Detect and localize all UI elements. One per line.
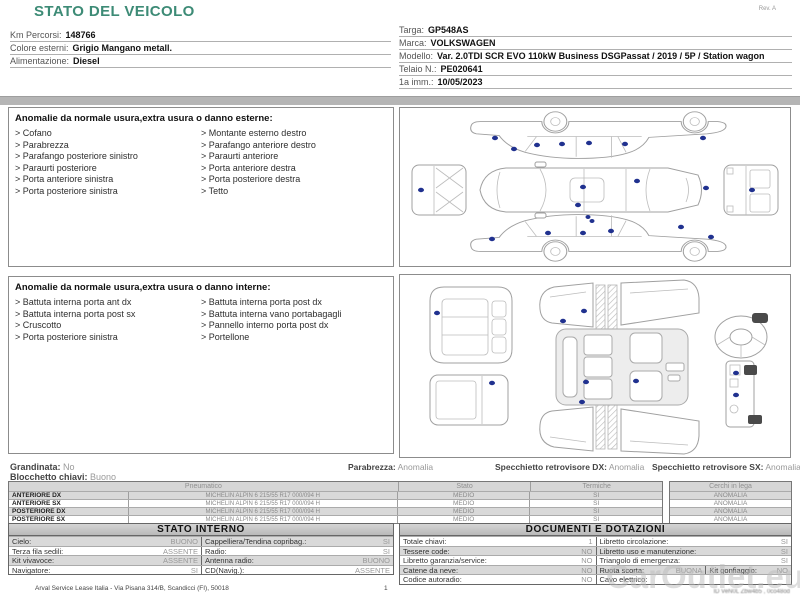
documenti-title: DOCUMENTI E DOTAZIONI: [400, 524, 791, 536]
table-row: Codice autoradio:NO Cavo elettrico:: [400, 574, 791, 584]
anomaly-item: Portellone: [201, 332, 381, 344]
cell-value: SI: [383, 547, 390, 556]
page-number: 1: [384, 585, 388, 592]
tyre-position: POSTERIORE SX: [9, 516, 129, 523]
tyre-termiche: SI: [530, 492, 662, 499]
info-value: PE020641: [441, 64, 483, 74]
info-label: Colore esterni:: [10, 43, 69, 53]
cell-value: SI: [191, 566, 198, 575]
tyre-row: ANTERIORE DX MICHELIN ALPIN 6 215/55 R17…: [9, 491, 662, 499]
cell-label: Terza fila sedili:: [12, 547, 63, 556]
table-cell: CD(Navig.):ASSENTE: [201, 566, 393, 575]
footer-address: Arval Service Lease Italia - Via Pisana …: [35, 585, 229, 592]
grandinata-status: Grandinata: No: [10, 462, 75, 472]
cerchi-header: Cerchi in lega: [670, 482, 791, 491]
cell-label: Navigatore:: [12, 566, 50, 575]
info-label: Telaio N.:: [399, 64, 437, 74]
info-row-alimentazione: Alimentazione:Diesel: [10, 55, 391, 68]
vehicle-info-left: Km Percorsi:148766 Colore esterni:Grigio…: [10, 29, 391, 68]
cell-label: CD(Navig.):: [205, 566, 244, 575]
anomaly-item: Battuta interna porta ant dx: [15, 297, 195, 309]
table-cell: Catene da neve:NO: [400, 566, 596, 575]
anomaly-item: Porta anteriore sinistra: [15, 174, 195, 186]
tyre-description: MICHELIN ALPIN 6 215/55 R17 000/094 H: [129, 492, 398, 499]
table-cell: Tessere code:NO: [400, 547, 596, 556]
col-header-cerchi: Cerchi in lega: [670, 482, 791, 491]
tailgate-view: [430, 375, 508, 425]
cell-value: NO: [777, 566, 788, 575]
cerchi-table: Cerchi in lega ANOMALIA ANOMALIA ANOMALI…: [669, 481, 792, 524]
info-value: GP548AS: [428, 25, 469, 35]
anomaly-item: Cruscotto: [15, 320, 195, 332]
anomaly-item: Porta anteriore destra: [201, 163, 381, 175]
status-label: Specchietto retrovisore SX:: [652, 462, 763, 472]
tyre-position: ANTERIORE DX: [9, 492, 129, 499]
anomaly-item: Porta posteriore sinistra: [15, 332, 195, 344]
status-value: Anomalia: [398, 462, 433, 472]
anomaly-item: Battuta interna vano portabagagli: [201, 309, 381, 321]
table-cell: Cavo elettrico:: [596, 575, 792, 584]
table-row: Totale chiavi:1 Libretto circolazione:SI: [400, 536, 791, 546]
cell-label: Libretto uso e manutenzione:: [600, 547, 697, 556]
anomaly-item: Montante esterno destro: [201, 128, 381, 140]
anomaly-column-left: Battuta interna porta ant dx Battuta int…: [15, 297, 201, 343]
cell-value: ASSENTE: [163, 547, 198, 556]
table-cell: Cielo:BUONO: [9, 537, 201, 546]
cell-value: ASSENTE: [355, 566, 390, 575]
anomaly-column-right: Montante esterno destro Parafango anteri…: [201, 128, 387, 197]
info-value: Var. 2.0TDI SCR EVO 110kW Business DSGPa…: [437, 51, 764, 61]
cell-label: Ruota scorta:: [600, 566, 645, 575]
info-row-marca: Marca:VOLKSWAGEN: [399, 37, 792, 50]
tyre-stato: MEDIO: [398, 508, 531, 515]
table-row: Tessere code:NO Libretto uso e manutenzi…: [400, 546, 791, 556]
status-label: Grandinata:: [10, 462, 61, 472]
col-header-termiche: Termiche: [531, 482, 662, 491]
info-label: Targa:: [399, 25, 424, 35]
separator-bar: [0, 96, 800, 105]
table-cell: Codice autoradio:NO: [400, 575, 596, 584]
trunk-view: [430, 287, 512, 363]
cell-label: Libretto garanzia/service:: [403, 556, 487, 565]
tyre-position: ANTERIORE SX: [9, 500, 129, 507]
internal-anomalies-title: Anomalie da normale usura,extra usura o …: [9, 277, 393, 296]
tyre-termiche: SI: [530, 516, 662, 523]
damage-markers-exterior: [418, 136, 755, 241]
anomaly-column-right: Battuta interna porta post dx Battuta in…: [201, 297, 387, 343]
table-cell: Antenna radio:BUONO: [201, 556, 393, 565]
info-label: Km Percorsi:: [10, 30, 62, 40]
car-side-view-bottom: [471, 215, 726, 262]
table-row: Catene da neve:NO Ruota scorta:BUONA Kit…: [400, 565, 791, 575]
table-subcell: Kit gonfiaggio:NO: [705, 566, 791, 575]
cell-value: NO: [581, 566, 592, 575]
tyre-stato: MEDIO: [398, 500, 531, 507]
info-row-km: Km Percorsi:148766: [10, 29, 391, 42]
table-cell: Kit vivavoce:ASSENTE: [9, 556, 201, 565]
document-code: ID VeN0L Zbw4b5 , 0co48od: [714, 589, 791, 595]
table-cell: Triangolo di emergenza:SI: [596, 556, 792, 565]
tyre-stato: MEDIO: [398, 492, 531, 499]
cerchi-value: ANOMALIA: [670, 507, 791, 515]
anomaly-item: Paraurti anteriore: [201, 151, 381, 163]
cabin-view: [540, 280, 699, 454]
external-anomalies-title: Anomalie da normale usura,extra usura o …: [9, 108, 393, 127]
interior-diagram-panel: [399, 274, 791, 458]
internal-anomalies-list: Battuta interna porta ant dx Battuta int…: [9, 296, 393, 344]
table-cell: Terza fila sedili:ASSENTE: [9, 547, 201, 556]
table-cell: Cappelliera/Tendina copribag.:SI: [201, 537, 393, 546]
table-subcell: Ruota scorta:BUONA: [597, 566, 706, 575]
exterior-diagram-panel: [399, 107, 791, 267]
cell-label: Cavo elettrico:: [600, 575, 648, 584]
info-label: 1a imm.:: [399, 77, 434, 87]
cell-value: BUONA: [676, 566, 703, 575]
cell-label: Cappelliera/Tendina copribag.:: [205, 537, 306, 546]
tyre-row: POSTERIORE SX MICHELIN ALPIN 6 215/55 R1…: [9, 515, 662, 523]
vehicle-info-right: Targa:GP548AS Marca:VOLKSWAGEN Modello:V…: [399, 24, 792, 89]
tyres-table-header: Pneumatico Stato Termiche: [9, 482, 662, 491]
cell-value: BUONO: [170, 537, 198, 546]
anomaly-item: Porta posteriore sinistra: [15, 186, 195, 198]
cerchi-value: ANOMALIA: [670, 499, 791, 507]
cell-value: BUONO: [362, 556, 390, 565]
parabrezza-status: Parabrezza: Anomalia: [348, 462, 433, 472]
table-row: Navigatore:SI CD(Navig.):ASSENTE: [9, 565, 393, 575]
info-label: Marca:: [399, 38, 427, 48]
anomaly-item: Parafango posteriore sinistro: [15, 151, 195, 163]
anomaly-item: Porta posteriore destra: [201, 174, 381, 186]
page-title: STATO DEL VEICOLO: [34, 3, 195, 20]
info-value: VOLKSWAGEN: [431, 38, 496, 48]
info-row-immatricolazione: 1a imm.:10/05/2023: [399, 76, 792, 89]
table-cell: Navigatore:SI: [9, 566, 201, 575]
info-value: 148766: [66, 30, 96, 40]
info-label: Alimentazione:: [10, 56, 69, 66]
cell-value: NO: [581, 556, 592, 565]
cerchi-value: ANOMALIA: [670, 491, 791, 499]
revision-label: Rev. A: [759, 6, 776, 12]
status-value: Anomalia: [765, 462, 800, 472]
tyre-termiche: SI: [530, 508, 662, 515]
cell-label: Kit gonfiaggio:: [709, 566, 757, 575]
car-side-view-top: [471, 112, 726, 159]
cell-value: ASSENTE: [163, 556, 198, 565]
cell-label: Antenna radio:: [205, 556, 254, 565]
tyre-stato: MEDIO: [398, 516, 531, 523]
table-cell: Libretto uso e manutenzione:SI: [596, 547, 792, 556]
cerchi-value: ANOMALIA: [670, 515, 791, 523]
anomaly-item: Battuta interna porta post dx: [201, 297, 381, 309]
documenti-dotazioni-table: DOCUMENTI E DOTAZIONI Totale chiavi:1 Li…: [399, 523, 792, 585]
info-row-colore: Colore esterni:Grigio Mangano metall.: [10, 42, 391, 55]
status-label: Specchietto retrovisore DX:: [495, 462, 607, 472]
col-header-stato: Stato: [399, 482, 532, 491]
anomaly-item: Cofano: [15, 128, 195, 140]
status-value: Anomalia: [609, 462, 644, 472]
cell-value: SI: [781, 547, 788, 556]
cell-label: Tessere code:: [403, 547, 450, 556]
tyre-position: POSTERIORE DX: [9, 508, 129, 515]
internal-anomalies-panel: Anomalie da normale usura,extra usura o …: [8, 276, 394, 454]
cell-value: SI: [781, 537, 788, 546]
tyre-description: MICHELIN ALPIN 6 215/55 R17 000/094 H: [129, 508, 398, 515]
table-cell: Radio:SI: [201, 547, 393, 556]
info-value: 10/05/2023: [438, 77, 483, 87]
cell-label: Kit vivavoce:: [12, 556, 54, 565]
anomaly-item: Battuta interna porta post sx: [15, 309, 195, 321]
anomaly-item: Pannello interno porta post dx: [201, 320, 381, 332]
car-top-view: [480, 162, 702, 218]
cell-label: Totale chiavi:: [403, 537, 446, 546]
status-value: No: [63, 462, 75, 472]
table-cell: Libretto garanzia/service:NO: [400, 556, 596, 565]
table-cell-split: Ruota scorta:BUONA Kit gonfiaggio:NO: [596, 566, 792, 575]
info-label: Modello:: [399, 51, 433, 61]
dashboard-view: [715, 313, 768, 427]
specchietto-dx-status: Specchietto retrovisore DX: Anomalia: [495, 462, 644, 472]
interior-damage-diagram: [400, 275, 790, 457]
anomaly-column-left: Cofano Parabrezza Parafango posteriore s…: [15, 128, 201, 197]
info-row-targa: Targa:GP548AS: [399, 24, 792, 37]
cell-label: Libretto circolazione:: [600, 537, 669, 546]
exterior-damage-diagram: [400, 108, 790, 266]
tyre-row: ANTERIORE SX MICHELIN ALPIN 6 215/55 R17…: [9, 499, 662, 507]
info-value: Diesel: [73, 56, 100, 66]
stato-interno-table: STATO INTERNO Cielo:BUONO Cappelliera/Te…: [8, 523, 394, 575]
tyre-description: MICHELIN ALPIN 6 215/55 R17 000/094 H: [129, 500, 398, 507]
cell-label: Catene da neve:: [403, 566, 458, 575]
status-label: Parabrezza:: [348, 462, 396, 472]
table-row: Cielo:BUONO Cappelliera/Tendina copribag…: [9, 536, 393, 546]
cell-value: 1: [588, 537, 592, 546]
info-row-modello: Modello:Var. 2.0TDI SCR EVO 110kW Busine…: [399, 50, 792, 63]
cell-label: Codice autoradio:: [403, 575, 462, 584]
table-cell: Totale chiavi:1: [400, 537, 596, 546]
table-cell: Libretto circolazione:SI: [596, 537, 792, 546]
cell-value: NO: [581, 547, 592, 556]
tyre-termiche: SI: [530, 500, 662, 507]
cell-label: Triangolo di emergenza:: [600, 556, 681, 565]
cell-value: SI: [383, 537, 390, 546]
tyre-row: POSTERIORE DX MICHELIN ALPIN 6 215/55 R1…: [9, 507, 662, 515]
anomaly-item: Parabrezza: [15, 140, 195, 152]
info-row-telaio: Telaio N.:PE020641: [399, 63, 792, 76]
external-anomalies-panel: Anomalie da normale usura,extra usura o …: [8, 107, 394, 267]
cell-value: NO: [581, 575, 592, 584]
info-value: Grigio Mangano metall.: [73, 43, 173, 53]
stato-interno-title: STATO INTERNO: [9, 524, 393, 536]
cell-value: SI: [781, 556, 788, 565]
col-header-pneumatico: Pneumatico: [9, 482, 399, 491]
tyres-table: Pneumatico Stato Termiche ANTERIORE DX M…: [8, 481, 663, 524]
cell-label: Cielo:: [12, 537, 31, 546]
tyre-description: MICHELIN ALPIN 6 215/55 R17 000/094 H: [129, 516, 398, 523]
external-anomalies-list: Cofano Parabrezza Parafango posteriore s…: [9, 127, 393, 198]
anomaly-item: Parafango anteriore destro: [201, 140, 381, 152]
table-row: Libretto garanzia/service:NO Triangolo d…: [400, 555, 791, 565]
table-row: Kit vivavoce:ASSENTE Antenna radio:BUONO: [9, 555, 393, 565]
specchietto-sx-status: Specchietto retrovisore SX: Anomalia: [652, 462, 800, 472]
anomaly-item: Tetto: [201, 186, 381, 198]
cell-label: Radio:: [205, 547, 227, 556]
anomaly-item: Paraurti posteriore: [15, 163, 195, 175]
table-row: Terza fila sedili:ASSENTE Radio:SI: [9, 546, 393, 556]
